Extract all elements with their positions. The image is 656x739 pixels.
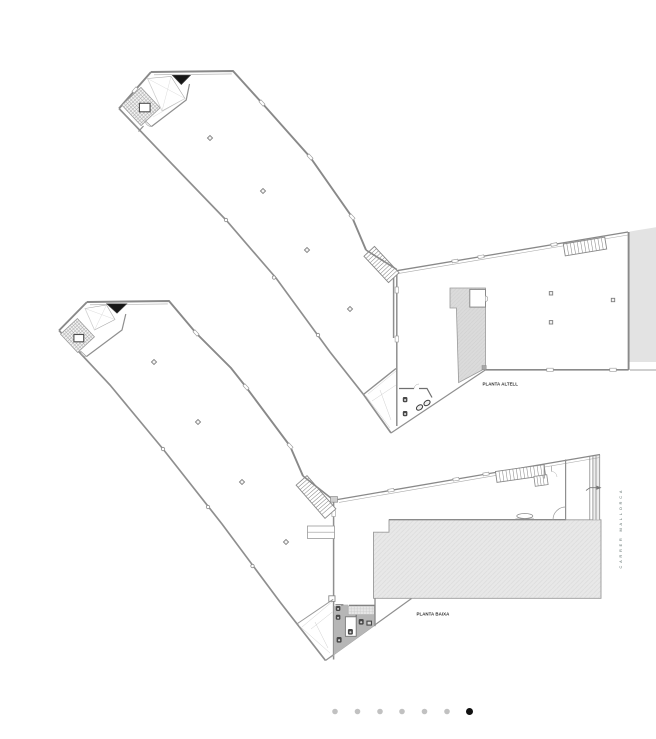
svg-text:PLANTA ALTELL: PLANTA ALTELL <box>483 381 519 386</box>
svg-text:PLANTA BAIXA: PLANTA BAIXA <box>417 611 451 616</box>
svg-text:CARRER MALLORCA: CARRER MALLORCA <box>619 488 623 569</box>
